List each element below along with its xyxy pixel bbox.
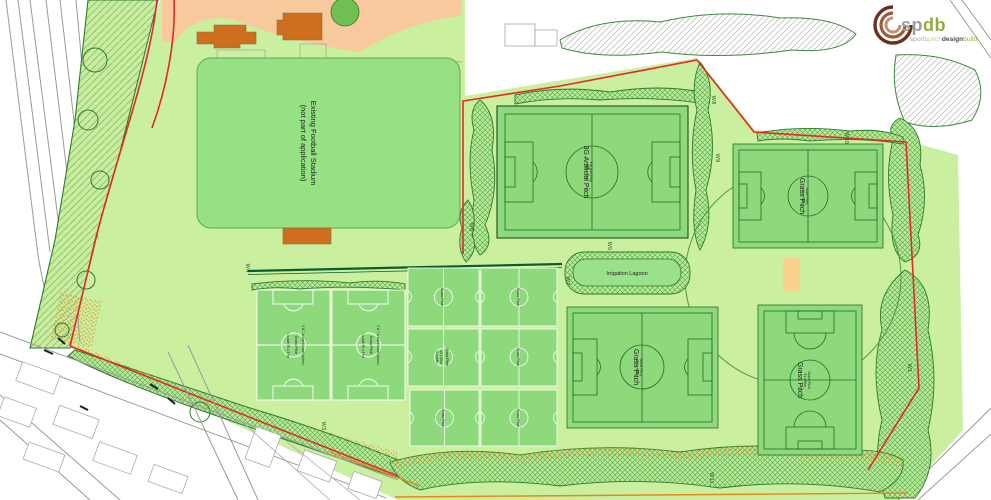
junior-b-label: Grass Pitch — [369, 336, 373, 355]
pitch-ne-dims-2: 82 x 50m — [801, 189, 805, 202]
pitch-3g-artificial: 3G Artificial Pitch Full Size Pitch 106 … — [497, 106, 688, 238]
pitch-s-dims-2: 100 x 64m — [635, 360, 639, 375]
pitch-mini-5: Grass Pitch — [410, 390, 479, 446]
stadium-label-line1: Existing Football Stadium — [309, 101, 318, 186]
w-label: W7 — [564, 277, 570, 286]
junior-a-note: 5 & 7-a-side football pitches — [301, 325, 305, 365]
pitch-mini-2: Grass Pitch — [481, 268, 557, 326]
pitch-grass-south: Grass Pitch Senior Pitch 100 x 64m — [567, 307, 718, 428]
w-label: W5 — [606, 242, 612, 251]
mini-pitch-label: Grass Pitch — [440, 288, 444, 307]
pitch-mini-1: Grass Pitch — [408, 268, 479, 326]
logo-wordmark: sportspitchdesignbuild — [910, 36, 977, 43]
mini-pitch-label: Grass Pitch — [516, 409, 520, 428]
pitch-se-dims-2: 91 x 56m — [803, 373, 807, 386]
pitch-grass-northeast: Grass Pitch Junior Pitch 82 x 50m — [733, 144, 883, 248]
irrigation-lagoon: Irrigation Lagoon — [565, 252, 690, 294]
mini-pitch-note-1: 5-a-side — [435, 351, 439, 363]
pitch-grass-southeast: Grass Pitch Senior Pitch 91 x 56m — [758, 305, 862, 455]
w-label: W11 — [708, 472, 714, 484]
pitch-3g-dims-2: 106 x 70m — [585, 165, 589, 180]
logo-abbr: spdb — [901, 15, 946, 35]
stadium-label-line2: (not part of application) — [299, 105, 308, 182]
pitch-se-label: Grass Pitch — [796, 362, 803, 398]
w-label: W8 — [710, 96, 716, 105]
junior-b-note: 5 & 7-a-side football pitches — [376, 325, 380, 365]
cricket-square — [783, 258, 800, 292]
w-label: W10 — [843, 132, 849, 144]
pitch-mini-6: Grass Pitch — [481, 390, 557, 446]
w-label: W1 — [906, 364, 912, 373]
w-label: W4 — [244, 264, 250, 273]
mini-pitch-label: Grass Pitch — [445, 348, 449, 367]
lagoon-label: Irrigation Lagoon — [606, 271, 647, 277]
masterplan-page: Existing Football Stadium (not part of a… — [0, 0, 991, 500]
pitch-mini-3: 5-a-side 40 x 30m Grass Pitch — [408, 329, 479, 386]
junior-a-dims: 7-a-side 55 x 37m — [286, 332, 290, 358]
tree-canopy — [331, 0, 359, 26]
w-label: W6 — [468, 223, 474, 232]
junior-a-label: Grass Pitch — [294, 336, 298, 355]
stadium-stand-building — [283, 228, 331, 244]
existing-football-stadium: Existing Football Stadium (not part of a… — [197, 58, 460, 244]
existing-building-east — [277, 13, 322, 40]
mini-pitch-label: Grass Pitch — [441, 409, 445, 428]
w-label: W3 — [320, 422, 326, 431]
junior-b-dims: 7-a-side 55 x 37m — [361, 332, 365, 358]
w-label: W9 — [714, 154, 720, 163]
mini-pitch-label: Grass Pitch — [516, 348, 520, 367]
pitch-junior-west-a: 7-a-side 55 x 37m Grass Pitch 5 & 7-a-si… — [257, 290, 330, 400]
pitch-mini-4: Grass Pitch — [481, 329, 557, 386]
mini-pitch-label: Grass Pitch — [516, 288, 520, 307]
mini-pitch-note-2: 40 x 30m — [439, 350, 443, 363]
pitch-junior-west-b: 7-a-side 55 x 37m Grass Pitch 5 & 7-a-si… — [332, 290, 405, 400]
site-plan-drawing: Existing Football Stadium (not part of a… — [0, 0, 991, 500]
